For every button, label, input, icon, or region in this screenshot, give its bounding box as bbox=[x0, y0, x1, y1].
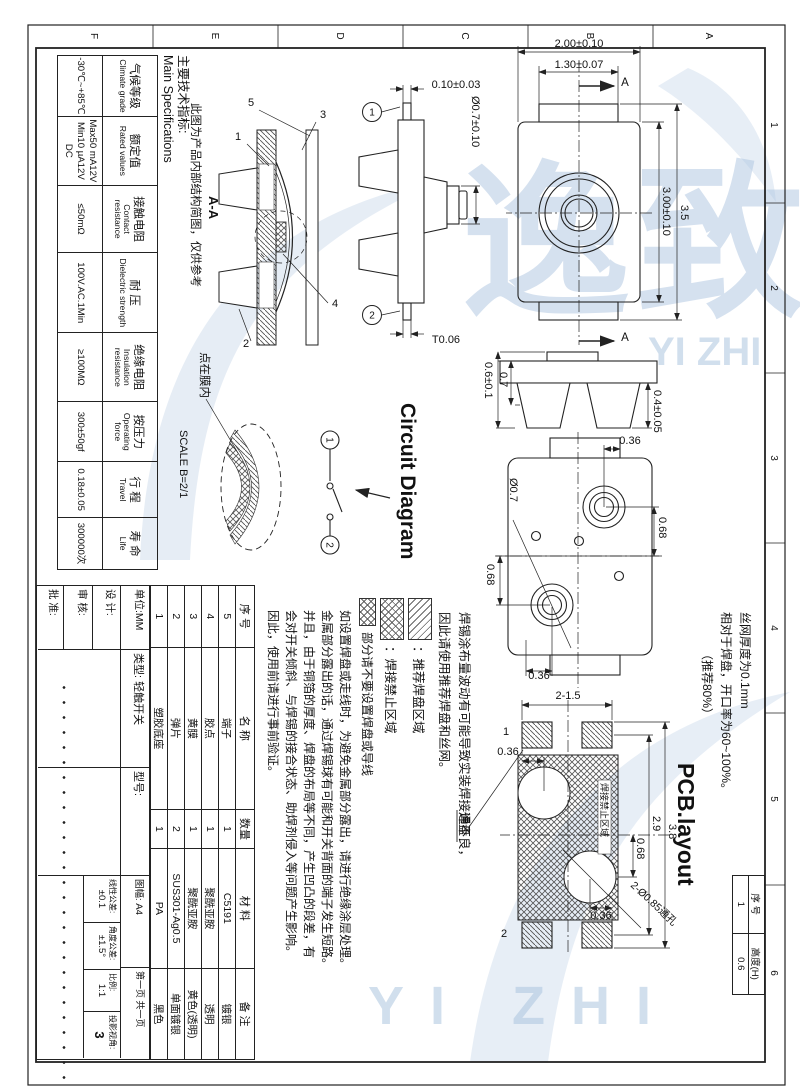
type-cell: 类型: 轻触开关 bbox=[121, 650, 150, 768]
projection-value: 3 bbox=[93, 1015, 108, 1055]
dim-body-length: 3.00±0.10 bbox=[660, 187, 672, 236]
bom-header-cell: 名 称 bbox=[236, 647, 255, 810]
bom-row: 5端子1C5191镀银 bbox=[219, 586, 236, 1060]
bom-cell: 黄色(透明) bbox=[185, 968, 202, 1059]
zone-letter: B bbox=[584, 33, 595, 40]
bom-row: 3黄膜1聚酰亚胺黄色(透明) bbox=[185, 586, 202, 1060]
section-label: A-A bbox=[206, 196, 221, 220]
bom-cell: 胶点 bbox=[202, 647, 219, 810]
spec-label-cell: 额定值Rated values bbox=[103, 116, 158, 185]
type-empty-cell bbox=[38, 650, 121, 768]
bom-cell: 1 bbox=[219, 810, 236, 849]
model-empty-cell bbox=[38, 768, 121, 876]
type-value: 轻触开关 bbox=[132, 681, 144, 725]
paragraph-line: 会对开关倾斜、与焊锡的接合状态、助焊剂侵入等问题产生影响。 bbox=[282, 610, 300, 1030]
angle-tol-value: ±1.5° bbox=[97, 926, 108, 966]
bom-cell: SUS301-Ag0.5 bbox=[168, 848, 185, 968]
pad-number: 2 bbox=[501, 928, 507, 940]
bom-cell: 4 bbox=[202, 586, 219, 648]
solder-note-line2: 因此请使用推荐焊盘和丝网。 bbox=[436, 612, 455, 775]
dim-total-height: 0.7 bbox=[497, 372, 509, 387]
section-arrow-label: A bbox=[621, 332, 629, 344]
hatch-swatch-icon bbox=[408, 598, 432, 640]
bom-row: 1塑胶底座1PA黑色 bbox=[151, 586, 168, 1060]
paragraph-line: 如设置焊盘或走线时，为避免金属部分露出，请进行绝缘涂层处理。 bbox=[336, 610, 354, 1030]
sheet-landscape: 1 2 3 4 5 6 A B C D E F bbox=[0, 0, 800, 1090]
bom-row: 4胶点1聚酰亚胺透明 bbox=[202, 586, 219, 1060]
spec-value-cell: Max50 mA12VMin10 µA12V DC bbox=[58, 116, 103, 185]
pcb-pad bbox=[582, 722, 612, 748]
callout-number: 5 bbox=[248, 97, 254, 109]
approver-cell: 批 准: bbox=[38, 586, 64, 650]
bom-cell: 3 bbox=[185, 586, 202, 648]
circuit-diagram: Circuit Diagram 1 2 bbox=[321, 403, 419, 559]
zone-letter: C bbox=[459, 32, 470, 39]
legend-prohibited: ：焊接禁止区域 bbox=[380, 598, 404, 734]
spec-table: 气候等级Climate grade额定值Rated values接触电阻Cont… bbox=[57, 55, 158, 570]
dim-total-length: 3.5 bbox=[678, 205, 690, 220]
spec-label-cell: 绝缘电阻Insulation resistance bbox=[103, 333, 158, 402]
bom-cell: 透明 bbox=[202, 968, 219, 1059]
top-view: 2.00±0.10 1.30±0.07 3.00±0.10 3.5 A A bbox=[506, 38, 690, 345]
height-table-value: 0.6 bbox=[733, 933, 749, 995]
spec-label-cell: 耐 压Dielectric strength bbox=[103, 253, 158, 333]
linear-tol-value: ±0.1 bbox=[97, 879, 108, 919]
bom-cell: C5191 bbox=[219, 848, 236, 968]
height-table-header: 序 号 bbox=[749, 876, 765, 934]
dim-pad: 2-1.5 bbox=[555, 690, 580, 702]
dim-offset-bottom: 0.36 bbox=[528, 670, 549, 682]
keepout-note-label: 部分请不要设置焊盘或导线 bbox=[359, 632, 376, 776]
dim-foot: 0.4±0.05 bbox=[651, 390, 663, 433]
side-view: 0.10±0.03 Ø0.7±0.10 T0.06 1 2 bbox=[359, 79, 481, 346]
bom-cell: 端子 bbox=[219, 647, 236, 810]
spec-label-cell: 寿 命Life bbox=[103, 518, 158, 570]
terminal-number: 2 bbox=[369, 311, 375, 322]
dim-hole-x2: 0.36 bbox=[590, 910, 611, 922]
bom-header-cell: 数量 bbox=[236, 810, 255, 849]
detail-note: 点在膜内 bbox=[198, 352, 212, 398]
stencil-note-line2: 相对于焊盘，开口率为60~100%。 bbox=[718, 612, 735, 795]
dim-stem: Ø0.7±0.10 bbox=[469, 96, 481, 147]
projection-cell: 投影视角: 3 bbox=[84, 1012, 121, 1058]
pcb-pad bbox=[522, 722, 552, 748]
bom-header-cell: 序 号 bbox=[236, 586, 255, 648]
spec-label-cell: 气候等级Climate grade bbox=[103, 56, 158, 117]
angle-tol-cell: 角度公差: ±1.5° bbox=[84, 923, 121, 970]
callout-number: 3 bbox=[320, 109, 326, 121]
solder-paragraph: 如设置焊盘或走线时，为避免金属部分露出，请进行绝缘涂层处理。 金属部分露出的话，… bbox=[264, 610, 354, 1030]
paragraph-line: 因此，使用前请进行事前验证。 bbox=[264, 610, 282, 1030]
height-table: 序 号 高度(H) 1 0.6 bbox=[732, 875, 765, 995]
bom-cell: 单面镀银 bbox=[168, 968, 185, 1059]
dim-inner-width: 1.30±0.07 bbox=[555, 59, 604, 71]
dim-rivet: Ø0.7 bbox=[507, 478, 519, 502]
dim-offset-y1: 0.68 bbox=[656, 517, 668, 538]
zone-number: 5 bbox=[768, 796, 779, 802]
dim-thickness: T0.06 bbox=[432, 334, 460, 346]
scale-cell: 比例: 1:1 bbox=[84, 970, 121, 1012]
spec-title-en: Main Specifications bbox=[161, 55, 175, 570]
title-block: 单位:MM 设 计: 审 核: 批 准: 类型: 轻触开关 型号: 图幅: A4… bbox=[36, 585, 150, 1060]
title-block-empty bbox=[38, 876, 84, 1058]
scale-label: 比例: bbox=[108, 973, 119, 1008]
bom-header-cell: 材 料 bbox=[236, 848, 255, 968]
spec-table-block: 主要技术指标: Main Specifications 气候等级Climate … bbox=[57, 55, 194, 570]
zone-letter: A bbox=[703, 33, 714, 40]
dim-offset-top: 0.36 bbox=[619, 435, 640, 447]
callout-number: 2 bbox=[243, 338, 249, 350]
spec-value-cell: 300±50gf bbox=[58, 402, 103, 462]
bom-cell: PA bbox=[151, 848, 168, 968]
side-view-2: 0.4±0.05 0.7 0.6±0.1 bbox=[482, 352, 663, 433]
pcb-title: PCB.layout bbox=[673, 763, 699, 886]
zone-number: 4 bbox=[768, 625, 779, 631]
linear-tol-cell: 线性公差: ±0.1 bbox=[84, 876, 121, 923]
spec-value-cell: 0.18±0.05 bbox=[58, 462, 103, 518]
bom-cell: 塑胶底座 bbox=[151, 647, 168, 810]
zone-number: 1 bbox=[768, 122, 779, 128]
pcb-layout: PCB.layout 焊接禁止区域 bbox=[457, 690, 699, 955]
top-view-dims bbox=[518, 46, 682, 320]
unit-cell: 单位:MM bbox=[121, 586, 150, 650]
model-cell: 型号: bbox=[121, 768, 150, 876]
page-cell: 第一页 共一页 bbox=[121, 968, 150, 1058]
pointer-arrow bbox=[356, 490, 390, 498]
bom-cell: 5 bbox=[219, 586, 236, 648]
zone-number: 6 bbox=[768, 970, 779, 976]
dim-length: 3.8 bbox=[666, 824, 678, 839]
sheet-size-label: 图幅: bbox=[133, 879, 144, 901]
checker-cell: 审 核: bbox=[64, 586, 93, 650]
angle-tol-label: 角度公差: bbox=[108, 926, 119, 966]
zone-letter: F bbox=[88, 33, 99, 39]
callout-number: 4 bbox=[332, 298, 338, 310]
linear-tol-label: 线性公差: bbox=[108, 879, 119, 919]
circuit-terminal: 1 bbox=[324, 437, 335, 443]
dim-pitch: 2.9 bbox=[650, 816, 662, 831]
crosshatch-swatch-icon bbox=[380, 598, 404, 640]
keepout-note: 部分请不要设置焊盘或导线 bbox=[359, 598, 376, 776]
spec-title-cn: 主要技术指标: bbox=[175, 55, 194, 570]
bom-cell: 弹片 bbox=[168, 647, 185, 810]
stencil-note-line1: 丝网厚度为0.1mm bbox=[737, 612, 754, 709]
section-view: 5 1 3 4 2 A-A 此图为产品内部结构简图，仅供参考 bbox=[189, 97, 338, 350]
paragraph-line: 金属部分露出的话，通过焊锡球有可能和开关背面的端子发生短路。 bbox=[318, 610, 336, 1030]
dim-hole-x1: 0.36 bbox=[497, 746, 518, 758]
dim-hole-y: 0.68 bbox=[634, 838, 646, 859]
projection-label: 投影视角: bbox=[108, 1015, 119, 1055]
spec-value-cell: ≤50mΩ bbox=[58, 185, 103, 252]
pcb-pad bbox=[522, 922, 552, 948]
solder-note-line1: 焊锡涂布量波动有可能导致实装焊接通不良， bbox=[456, 612, 475, 862]
zone-number: 2 bbox=[768, 285, 779, 291]
terminal-number: 1 bbox=[369, 108, 375, 119]
dim-offset-y2: 0.68 bbox=[484, 564, 496, 585]
bom-cell: 2 bbox=[168, 810, 185, 849]
bom-header-cell: 备 注 bbox=[236, 968, 255, 1059]
hole-label: 2-Ø0.85通孔 bbox=[628, 879, 680, 929]
zone-number: 3 bbox=[768, 455, 779, 461]
bottom-view: 0.36 0.68 0.68 0.36 Ø0.7 bbox=[484, 432, 668, 688]
spec-value-cell: -30℃~+85℃ bbox=[58, 56, 103, 117]
bom-cell: 黑色 bbox=[151, 968, 168, 1059]
legend-recommended-label: ：推荐焊盘区域 bbox=[411, 646, 430, 734]
bom-block: 序 号名 称数量材 料备 注 5端子1C5191镀银4胶点1聚酰亚胺透明3黄膜1… bbox=[150, 585, 255, 1060]
bom-cell: 2 bbox=[168, 586, 185, 648]
legend-recommended: ：推荐焊盘区域 bbox=[408, 598, 432, 734]
sheet-size-value: A4 bbox=[133, 903, 144, 915]
designer-cell: 设 计: bbox=[92, 586, 121, 650]
legend-prohibited-label: ：焊接禁止区域 bbox=[383, 646, 402, 734]
dim-body-height: 0.6±0.1 bbox=[482, 362, 494, 399]
type-label: 类型: bbox=[132, 653, 144, 678]
stencil-note-line3: （推荐80%） bbox=[699, 648, 716, 720]
crosshatch-swatch-icon bbox=[359, 598, 376, 626]
spec-value-cell: 100V.AC.1Min bbox=[58, 253, 103, 333]
dim-width: 2.00±0.10 bbox=[555, 38, 604, 50]
keepout-label: 焊接禁止区域 bbox=[599, 783, 610, 837]
pad-number: 1 bbox=[503, 726, 509, 738]
bom-cell: 聚酰亚胺 bbox=[185, 848, 202, 968]
bom-cell: 黄膜 bbox=[185, 647, 202, 810]
height-table-header: 高度(H) bbox=[749, 933, 765, 995]
bom-row: 2弹片2SUS301-Ag0.5单面镀银 bbox=[168, 586, 185, 1060]
spec-label-cell: 接触电阻Contact resistance bbox=[103, 185, 158, 252]
bom-cell: 聚酰亚胺 bbox=[202, 848, 219, 968]
scale-value: 1:1 bbox=[97, 973, 108, 1008]
drawing-sheet: 逸致 YI ZHI YI ZHI bbox=[0, 0, 800, 1090]
bom-table: 序 号名 称数量材 料备 注 5端子1C5191镀银4胶点1聚酰亚胺透明3黄膜1… bbox=[150, 585, 255, 1060]
zone-letter: D bbox=[334, 32, 345, 39]
spec-value-cell: 300000次 bbox=[58, 518, 103, 570]
circuit-terminal: 2 bbox=[324, 542, 335, 548]
section-arrow-label: A bbox=[621, 77, 629, 89]
bom-cell: 镀银 bbox=[219, 968, 236, 1059]
bom-cell: 1 bbox=[185, 810, 202, 849]
sheet-size-cell: 图幅: A4 bbox=[121, 876, 150, 968]
fold-dotted-line bbox=[62, 680, 66, 1085]
bom-cell: 1 bbox=[151, 586, 168, 648]
bom-cell: 1 bbox=[202, 810, 219, 849]
spec-label-cell: 行 程Travel bbox=[103, 462, 158, 518]
bom-cell: 1 bbox=[151, 810, 168, 849]
dim-pin: 0.10±0.03 bbox=[432, 79, 481, 91]
spec-label-cell: 按压力Operating force bbox=[103, 402, 158, 462]
circuit-title: Circuit Diagram bbox=[396, 403, 419, 559]
callout-number: 1 bbox=[235, 131, 241, 143]
height-table-value: 1 bbox=[733, 876, 749, 934]
pcb-pad bbox=[582, 922, 612, 948]
spec-value-cell: ≥100MΩ bbox=[58, 333, 103, 402]
zone-letter: E bbox=[209, 33, 220, 40]
paragraph-line: 并且，由于铜箔的厚度、焊盘的布局等不同，产生凹凸的段差，有 bbox=[300, 610, 318, 1030]
